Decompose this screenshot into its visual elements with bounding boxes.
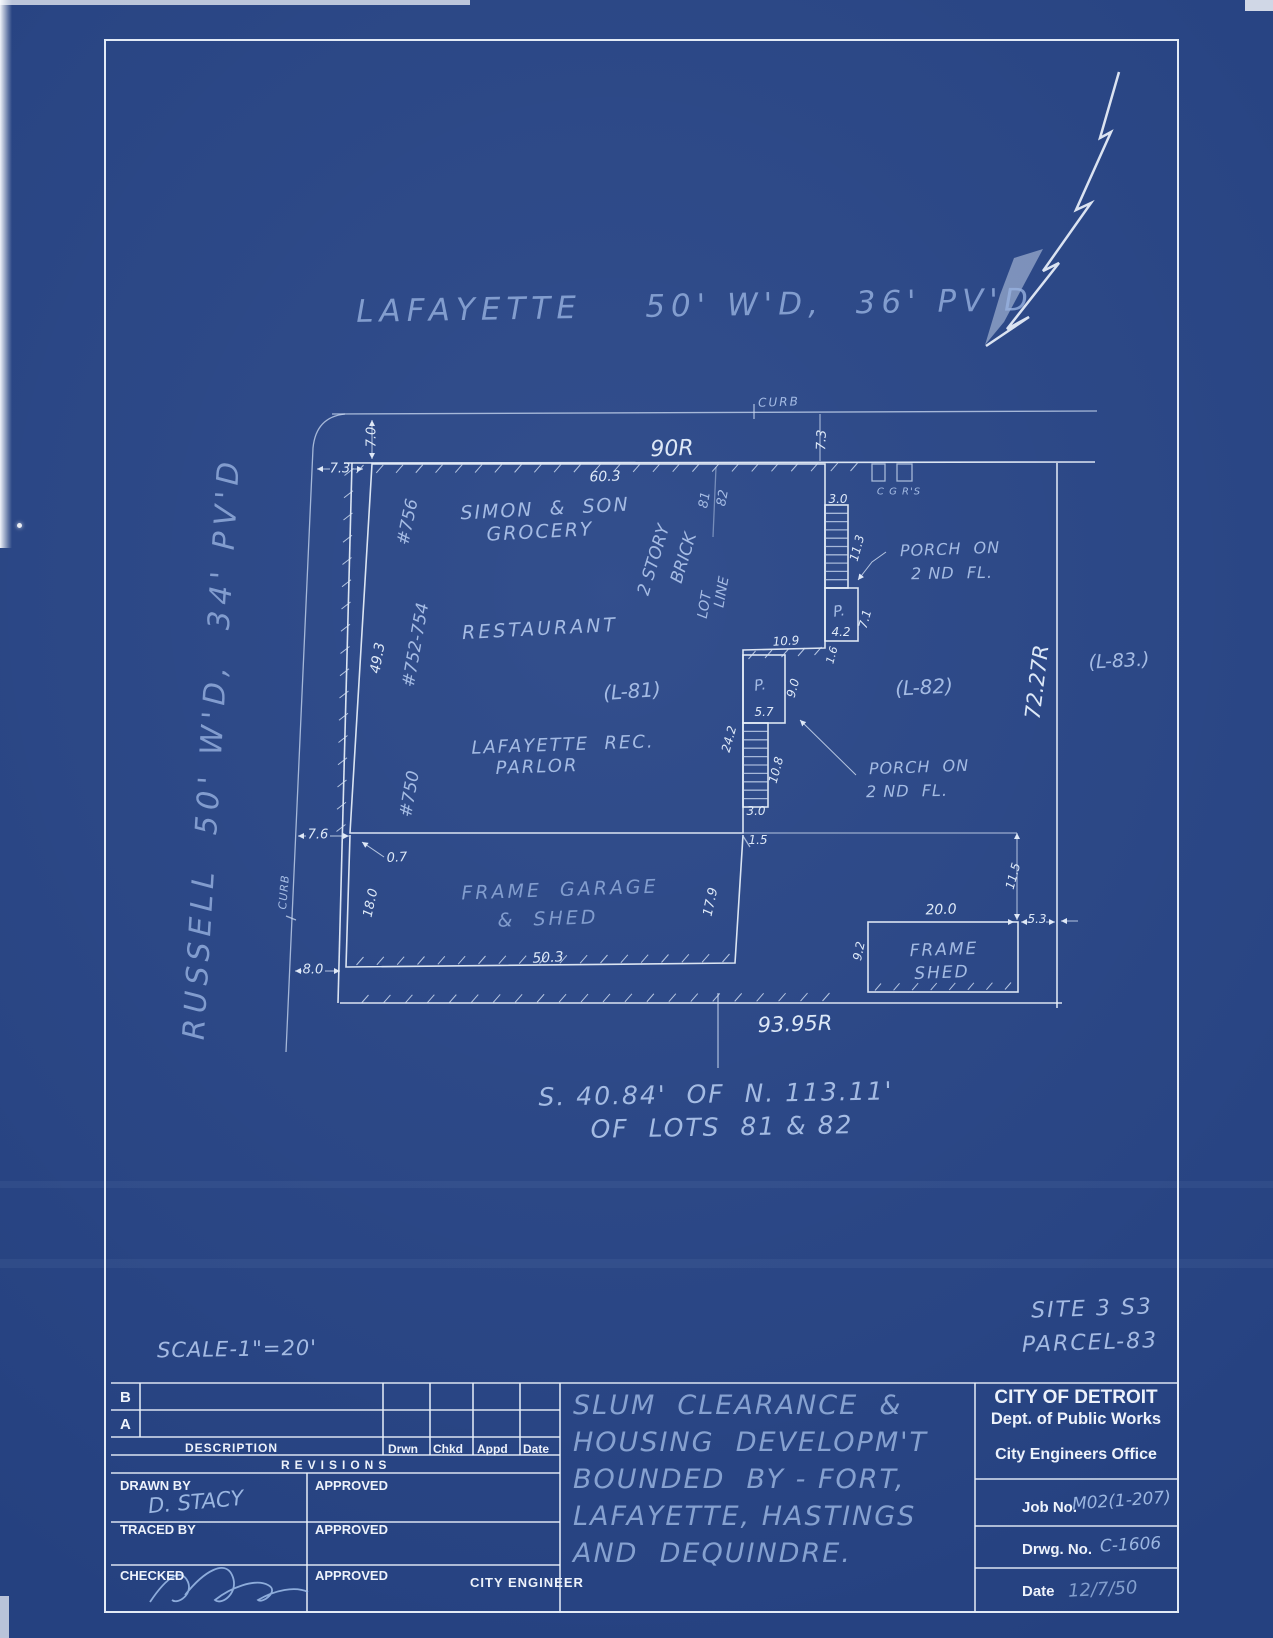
project-title-line: AND DEQUINDRE. — [573, 1538, 973, 1575]
scan-band — [0, 1259, 1273, 1268]
parcel-number: PARCEL-83 — [1021, 1328, 1158, 1358]
dim-93-95r: 93.95R — [757, 1011, 833, 1038]
paper-edge-left — [0, 0, 12, 548]
dim-7-3-right: 7.3 — [814, 429, 830, 450]
dim-50-3: 50.3 — [532, 949, 564, 967]
site-number: SITE 3 S3 — [1031, 1294, 1154, 1323]
org-dept: Dept. of Public Works — [975, 1410, 1177, 1429]
rev-description-header: DESCRIPTION — [185, 1441, 278, 1455]
project-title-line: LAFAYETTE, HASTINGS — [573, 1501, 973, 1538]
lot-l81: (L-81) — [602, 677, 661, 705]
blueprint-sheet: LAFAYETTE 50' W'D, 36' PV'DRUSSELL 50' W… — [0, 0, 1273, 1638]
porch2-text2: 2 ND FL. — [866, 781, 948, 801]
job-no-label: Job No. — [1022, 1499, 1077, 1516]
lot-l82: (L-82) — [894, 674, 953, 701]
paper-edge-bottom-left — [0, 1596, 9, 1638]
rev-col-drwn: Drwn — [388, 1442, 418, 1456]
project-title-line: HOUSING DEVELOPM'T — [573, 1427, 973, 1464]
note-lots-line2: OF LOTS 81 & 82 — [590, 1110, 853, 1144]
dim-7-0: 7.0 — [365, 427, 380, 448]
dim-7-3-left: 7.3 — [330, 462, 351, 477]
lotnum-82: 82 — [714, 489, 732, 508]
checked-label: CHECKED — [120, 1568, 184, 1583]
rev-col-appd: Appd — [477, 1442, 508, 1456]
date-value: 12/7/50 — [1067, 1577, 1137, 1602]
project-title-line: BOUNDED BY - FORT, — [573, 1464, 973, 1501]
lot-l83: (L-83.) — [1088, 648, 1150, 673]
drwg-no-value: C-1606 — [1100, 1533, 1162, 1556]
drwg-no-label: Drwg. No. — [1022, 1541, 1092, 1558]
dim-60-3: 60.3 — [589, 468, 621, 485]
project-title: SLUM CLEARANCE &HOUSING DEVELOPM'TBOUNDE… — [573, 1390, 973, 1575]
bldg-frame-shed1: FRAME — [909, 939, 978, 961]
scale-note: SCALE-1"=20' — [157, 1336, 317, 1363]
bldg-and-shed: & SHED — [497, 906, 599, 932]
dim-20-0: 20.0 — [925, 901, 957, 918]
curb-label-top: CURB — [758, 394, 800, 409]
lotnum-81: 81 — [696, 491, 714, 510]
porch1-p: P. — [832, 601, 846, 620]
porch2-p: P. — [753, 675, 767, 694]
label-cgrs: C G R'S — [877, 487, 921, 498]
bldg-frame-shed2: SHED — [914, 962, 970, 984]
dim-1-5: 1.5 — [748, 833, 767, 847]
bldg-parlor: PARLOR — [495, 755, 579, 779]
porch1-text2: 2 ND FL. — [911, 563, 993, 583]
revisions-title: REVISIONS — [281, 1458, 391, 1472]
porch1-text1: PORCH ON — [900, 538, 1001, 560]
dim-7-6: 7.6 — [308, 828, 329, 843]
city-engineer-label: CITY ENGINEER — [470, 1575, 584, 1590]
paper-edge-top-right — [1245, 0, 1273, 11]
approved-label-1: APPROVED — [315, 1478, 388, 1493]
dim-90r: 90R — [650, 436, 694, 462]
dim-4-2: 4.2 — [831, 625, 850, 639]
rev-col-date: Date — [523, 1442, 549, 1456]
dim-5-3: 5.3 — [1027, 912, 1046, 926]
paper-speck — [17, 523, 22, 528]
porch2-text1: PORCH ON — [869, 756, 970, 778]
dim-8-0: 8.0 — [303, 963, 324, 978]
org-office: City Engineers Office — [975, 1446, 1177, 1464]
date-label: Date — [1022, 1583, 1055, 1600]
org-name: CITY OF DETROIT — [975, 1387, 1177, 1409]
rev-col-chkd: Chkd — [433, 1442, 463, 1456]
paper-edge-top — [0, 0, 470, 5]
dim-0-7: 0.7 — [386, 850, 407, 866]
dim-3-0-bottom: 3.0 — [746, 804, 765, 818]
note-lots-line1: S. 40.84' OF N. 113.11' — [538, 1076, 893, 1111]
traced-by-label: TRACED BY — [120, 1522, 196, 1537]
approved-label-2: APPROVED — [315, 1522, 388, 1537]
dim-10-9: 10.9 — [772, 633, 799, 648]
rev-row-b: B — [120, 1389, 131, 1406]
dim-5-7: 5.7 — [754, 705, 773, 719]
rev-row-a: A — [120, 1416, 131, 1433]
approved-label-3: APPROVED — [315, 1568, 388, 1583]
scan-band — [0, 1181, 1273, 1188]
project-title-line: SLUM CLEARANCE & — [573, 1390, 973, 1427]
dim-3-0-top: 3.0 — [828, 492, 847, 506]
